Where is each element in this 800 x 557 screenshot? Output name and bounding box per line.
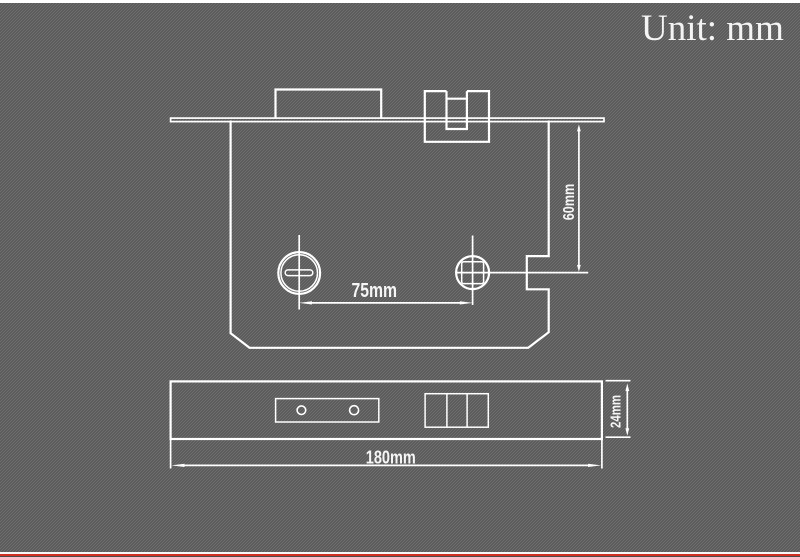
svg-text:180mm: 180mm: [366, 447, 416, 468]
svg-text:60mm: 60mm: [561, 184, 578, 221]
svg-text:75mm: 75mm: [351, 280, 397, 302]
svg-text:24mm: 24mm: [608, 395, 625, 428]
